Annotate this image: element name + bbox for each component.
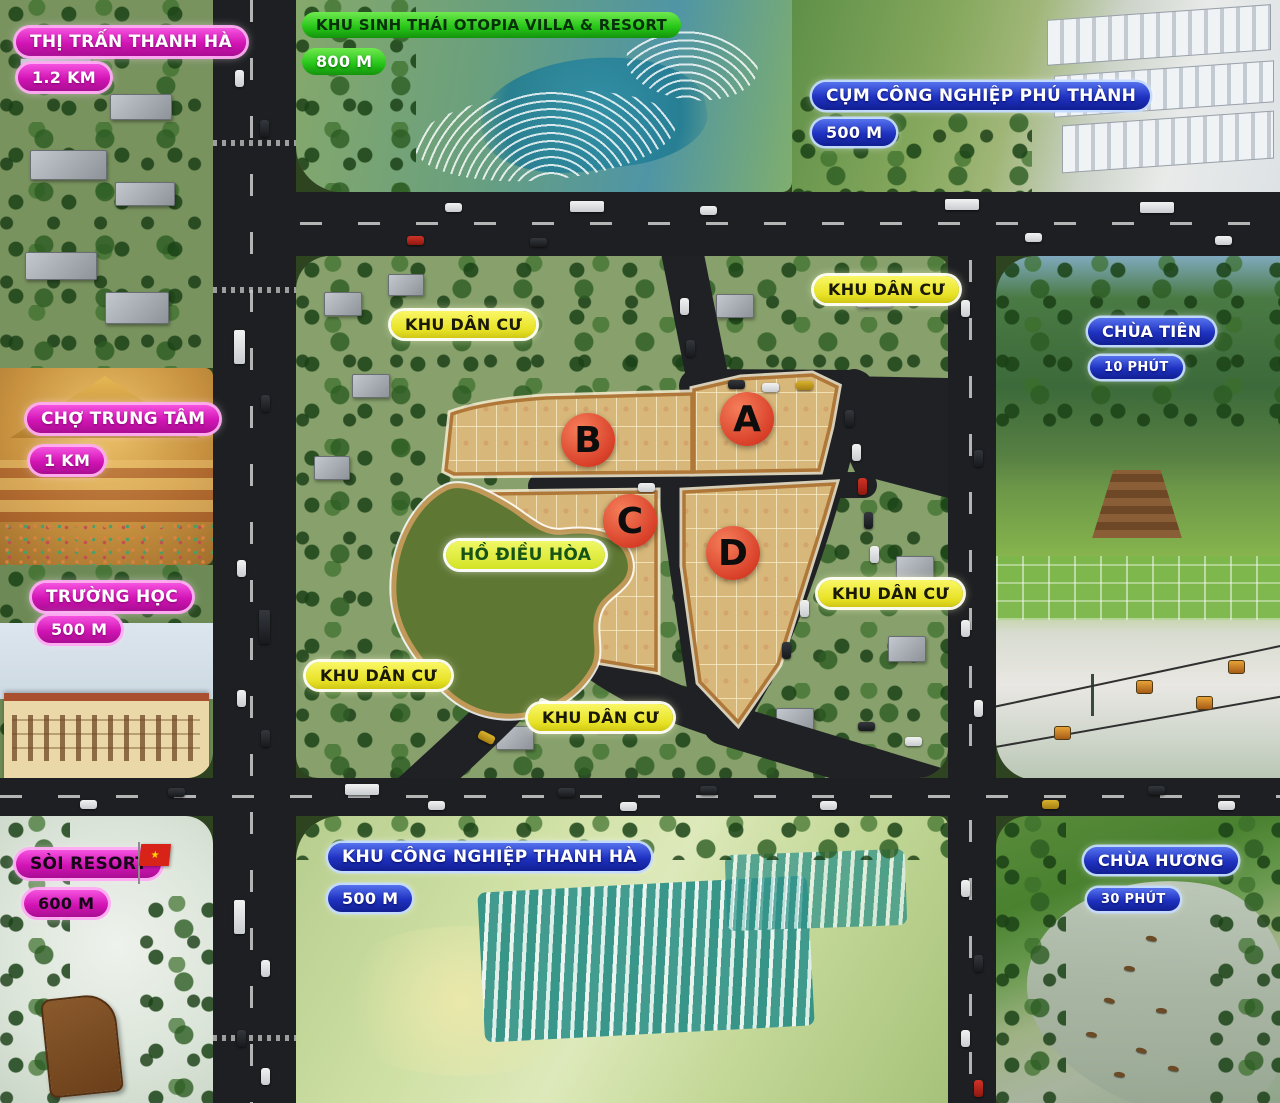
plot-letter: C [617, 501, 643, 542]
road-center-line [969, 260, 972, 776]
truck [345, 784, 379, 795]
green-fields [996, 556, 1280, 620]
tree-cluster [140, 896, 213, 1103]
car [407, 236, 424, 245]
car [870, 546, 879, 563]
crosswalk [213, 140, 296, 146]
car [680, 298, 689, 315]
car [782, 642, 791, 659]
car [530, 238, 547, 247]
car [261, 395, 270, 412]
cable-car-gondola [1196, 696, 1213, 710]
label-cho-trung-tam: CHỢ TRUNG TÂM [27, 405, 219, 433]
distance-chua-huong: 30 PHÚT [1087, 888, 1180, 911]
car [80, 800, 97, 809]
car [858, 478, 867, 495]
distance-soi-resort: 600 M [24, 890, 108, 917]
tree-cluster [996, 256, 1280, 436]
villa-cluster [411, 81, 680, 191]
distance-cho-trung-tam: 1 KM [30, 447, 104, 474]
car [261, 960, 270, 977]
label-khu-dan-cu-1: KHU DÂN CƯ [391, 311, 536, 338]
label-otopia-resort: KHU SINH THÁI OTOPIA VILLA & RESORT [302, 12, 681, 38]
road-center-line [969, 820, 972, 1103]
truck [234, 330, 245, 364]
label-thi-tran-thanh-ha: THỊ TRẤN THANH HÀ [16, 28, 246, 56]
car [700, 206, 717, 215]
tree-cluster [996, 816, 1066, 1103]
vietnam-flag [139, 844, 171, 866]
cable-car-pylon [1091, 674, 1094, 716]
label-khu-dan-cu-3: KHU DÂN CƯ [818, 580, 963, 607]
house [110, 94, 172, 120]
car [620, 802, 637, 811]
label-ho-dieu-hoa: HỒ ĐIỀU HÒA [446, 541, 605, 569]
plot-letter: A [733, 399, 761, 440]
car [558, 788, 575, 797]
market-stalls [0, 460, 213, 522]
car [974, 450, 983, 467]
road-right-vertical [948, 256, 996, 1103]
car [858, 722, 875, 731]
car [260, 120, 269, 137]
car [445, 203, 462, 212]
car [974, 955, 983, 972]
car [1218, 801, 1235, 810]
house [105, 292, 169, 324]
plot-marker-D: D [706, 526, 760, 580]
car [961, 880, 970, 897]
cable-line [996, 641, 1280, 709]
car [168, 788, 185, 797]
plot-letter: D [718, 533, 748, 574]
label-khu-dan-cu-2: KHU DÂN CƯ [814, 276, 959, 303]
truck [945, 199, 979, 210]
car [762, 383, 779, 392]
car [728, 380, 745, 389]
cable-car-gondola [1136, 680, 1153, 694]
label-khu-dan-cu-4: KHU DÂN CƯ [306, 662, 451, 689]
warehouse [1047, 4, 1271, 66]
car [237, 1030, 246, 1047]
road-center-line [250, 0, 253, 1103]
label-chua-tien: CHÙA TIÊN [1088, 318, 1215, 345]
distance-otopia-resort: 800 M [302, 48, 386, 75]
temple-steps [1078, 470, 1196, 538]
distance-chua-tien: 10 PHÚT [1090, 356, 1183, 379]
road-center-line [300, 222, 1280, 225]
car [261, 1068, 270, 1085]
market-crowd [0, 520, 213, 565]
road-center-line [0, 795, 1280, 798]
truck [234, 900, 245, 934]
car [638, 483, 655, 492]
car [974, 700, 983, 717]
plot-marker-B: B [561, 413, 615, 467]
distance-cum-cn-phu-thanh: 500 M [812, 119, 896, 146]
car [686, 340, 695, 357]
car [845, 410, 854, 427]
road-left-vertical [213, 0, 296, 1103]
resort-sign [40, 992, 124, 1098]
car [961, 300, 970, 317]
plot-zone-D [684, 484, 834, 722]
truck [259, 610, 270, 644]
truck [1140, 202, 1174, 213]
car [852, 444, 861, 461]
car [796, 381, 813, 390]
distance-truong-hoc: 500 M [37, 616, 121, 643]
school-building [4, 693, 209, 778]
distance-thi-tran-thanh-ha: 1.2 KM [18, 64, 110, 91]
plot-marker-C: C [603, 494, 657, 548]
label-khu-dan-cu-5: KHU DÂN CƯ [528, 704, 673, 731]
warehouse [1062, 111, 1274, 174]
house [115, 182, 175, 206]
cable-car-gondola [1054, 726, 1071, 740]
cable-car-gondola [1228, 660, 1245, 674]
house [25, 252, 97, 280]
car [974, 1080, 983, 1097]
car [237, 560, 246, 577]
house [30, 150, 107, 180]
cable-line [996, 692, 1280, 750]
label-truong-hoc: TRƯỜNG HỌC [32, 583, 192, 611]
label-khu-cn-thanh-ha: KHU CÔNG NGHIỆP THANH HÀ [328, 843, 651, 871]
plot-marker-A: A [720, 392, 774, 446]
car [864, 512, 873, 529]
car [1025, 233, 1042, 242]
car [428, 801, 445, 810]
truck [570, 201, 604, 212]
car [1215, 236, 1232, 245]
label-chua-huong: CHÙA HƯƠNG [1084, 847, 1238, 874]
car [800, 600, 809, 617]
car [700, 786, 717, 795]
car [261, 730, 270, 747]
project-location-map: A B C D THỊ TRẤN THANH HÀ 1.2 KM KHU SIN… [0, 0, 1280, 1103]
factory-rows [725, 849, 908, 931]
car [961, 620, 970, 637]
crosswalk [213, 287, 296, 293]
car [1148, 786, 1165, 795]
car [905, 737, 922, 746]
plot-letter: B [574, 420, 601, 461]
label-cum-cn-phu-thanh: CỤM CÔNG NGHIỆP PHÚ THÀNH [812, 82, 1150, 110]
car [961, 1030, 970, 1047]
car [237, 690, 246, 707]
car [820, 801, 837, 810]
car [1042, 800, 1059, 809]
distance-khu-cn-thanh-ha: 500 M [328, 885, 412, 912]
crosswalk [213, 1035, 296, 1041]
car [235, 70, 244, 87]
